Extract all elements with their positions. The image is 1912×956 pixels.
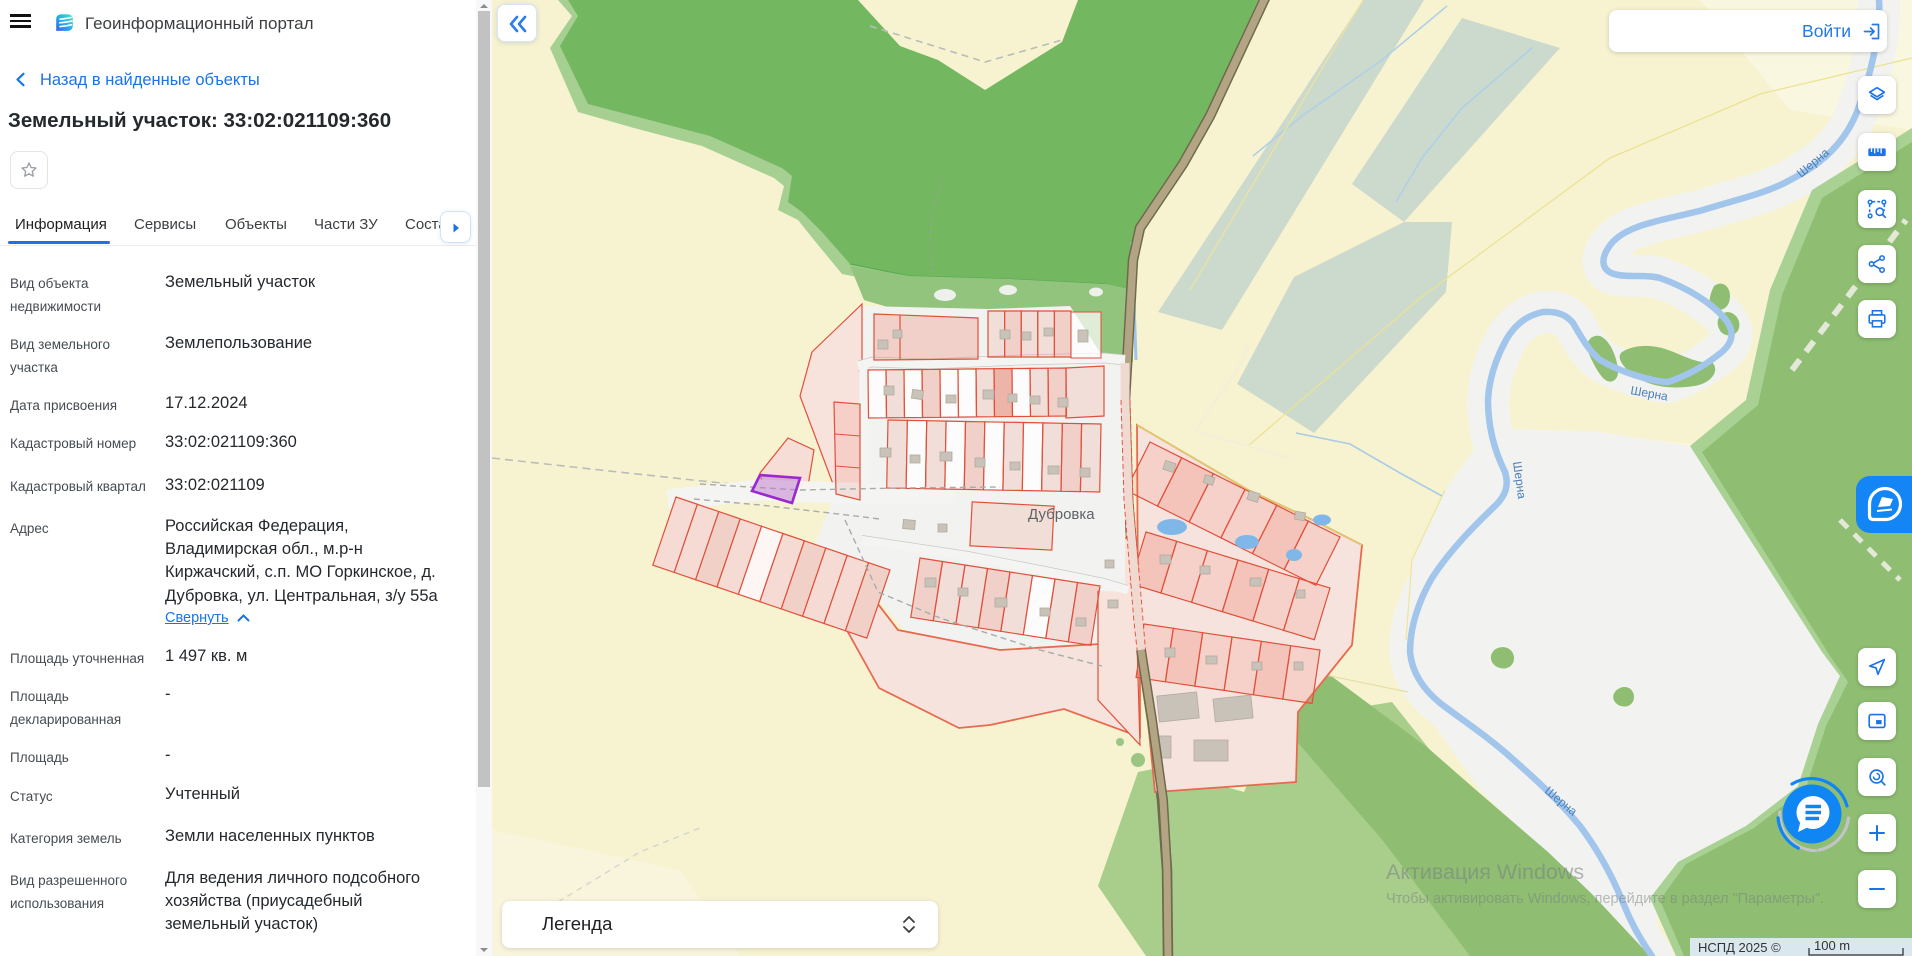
svg-text:Дубровка: Дубровка bbox=[1028, 506, 1095, 523]
